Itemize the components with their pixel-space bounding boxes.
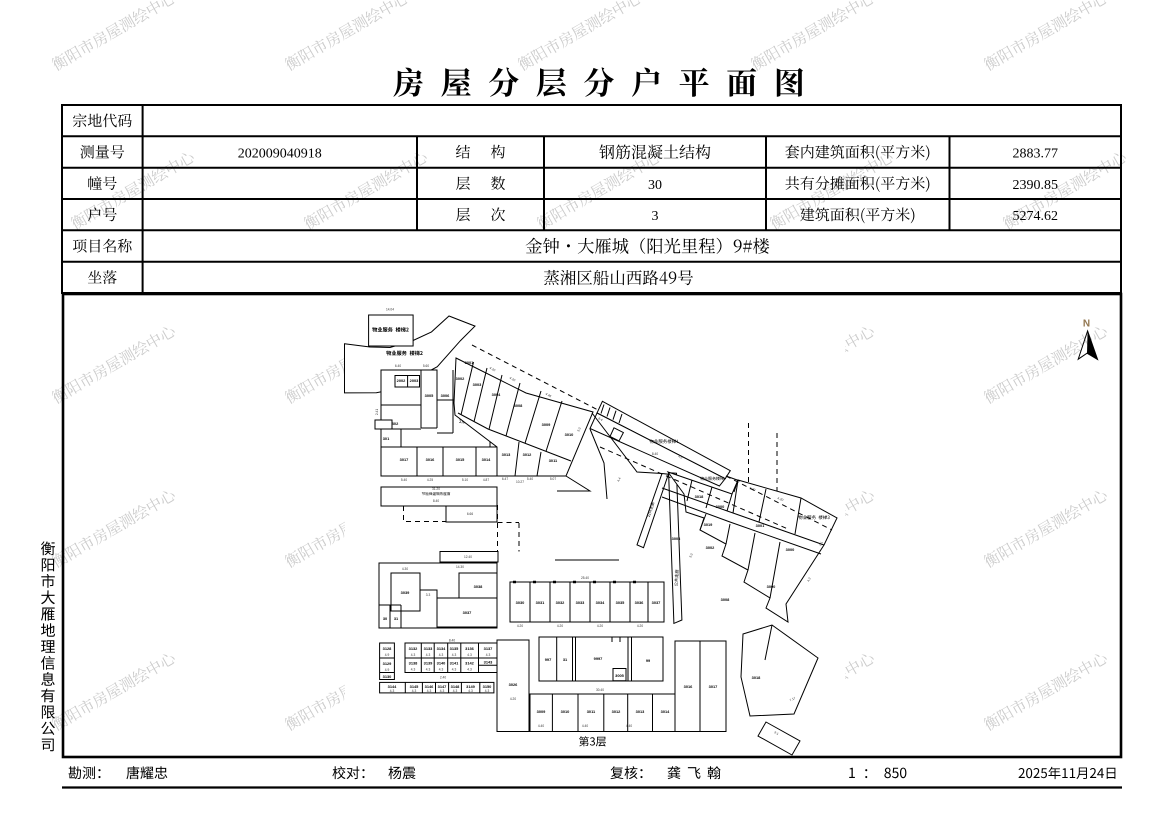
svg-text:3004: 3004 xyxy=(492,392,501,397)
svg-text:3128: 3128 xyxy=(383,646,392,651)
svg-text:3133: 3133 xyxy=(424,646,433,651)
svg-text:3141: 3141 xyxy=(450,661,459,666)
svg-text:2002: 2002 xyxy=(397,378,406,383)
svg-text:5.40: 5.40 xyxy=(527,477,533,481)
svg-text:3: 3 xyxy=(652,209,659,224)
svg-text:4.20: 4.20 xyxy=(510,697,516,701)
svg-text:2.41: 2.41 xyxy=(375,409,379,415)
svg-text:3143: 3143 xyxy=(484,660,493,665)
svg-text:3026: 3026 xyxy=(509,682,518,687)
svg-text:14.04: 14.04 xyxy=(386,308,394,312)
svg-text:4.20: 4.20 xyxy=(597,624,603,628)
svg-text:3132: 3132 xyxy=(409,646,418,651)
svg-text:4.3: 4.3 xyxy=(439,668,444,672)
svg-text:3009: 3009 xyxy=(542,422,551,427)
svg-text:4.3: 4.3 xyxy=(426,668,431,672)
svg-text:4.25: 4.25 xyxy=(427,478,433,482)
svg-text:2003: 2003 xyxy=(410,378,419,383)
svg-text:301: 301 xyxy=(383,436,390,441)
svg-text:4.20: 4.20 xyxy=(637,624,643,628)
svg-text:4.9: 4.9 xyxy=(385,668,390,672)
svg-text:3035: 3035 xyxy=(616,600,625,605)
svg-text:997: 997 xyxy=(545,657,552,662)
svg-text:4.3: 4.3 xyxy=(453,689,458,693)
svg-text:3039: 3039 xyxy=(401,590,410,595)
svg-text:3018: 3018 xyxy=(752,675,761,680)
svg-text:4.87: 4.87 xyxy=(483,478,489,482)
svg-text:8.40: 8.40 xyxy=(652,452,658,456)
svg-text:2390.85: 2390.85 xyxy=(1013,178,1059,193)
svg-text:3030: 3030 xyxy=(516,600,525,605)
svg-text:3034: 3034 xyxy=(596,600,605,605)
svg-text:4.3: 4.3 xyxy=(427,689,432,693)
svg-text:3008: 3008 xyxy=(721,597,730,602)
svg-text:3008: 3008 xyxy=(514,403,523,408)
svg-text:4.40: 4.40 xyxy=(538,724,544,728)
svg-text:30.40: 30.40 xyxy=(596,688,604,692)
svg-text:3031: 3031 xyxy=(536,600,545,605)
svg-text:3015: 3015 xyxy=(456,457,465,462)
svg-text:30: 30 xyxy=(383,616,387,621)
svg-text:3011: 3011 xyxy=(587,709,596,714)
svg-text:4.3: 4.3 xyxy=(468,689,473,693)
svg-text:202009040918: 202009040918 xyxy=(238,146,322,161)
svg-text:4.3: 4.3 xyxy=(426,653,431,657)
svg-text:302: 302 xyxy=(392,421,399,426)
svg-text:4.40: 4.40 xyxy=(626,724,632,728)
svg-text:3002: 3002 xyxy=(456,376,465,381)
svg-text:6.47: 6.47 xyxy=(502,477,508,481)
svg-text:3001: 3001 xyxy=(756,523,765,528)
svg-text:4.3: 4.3 xyxy=(439,653,444,657)
svg-text:4.3: 4.3 xyxy=(467,668,472,672)
svg-text:6.66: 6.66 xyxy=(467,512,473,516)
svg-text:5.10: 5.10 xyxy=(462,478,468,482)
svg-text:N: N xyxy=(1083,319,1090,330)
svg-text:3003: 3003 xyxy=(473,382,482,387)
svg-text:4.9: 4.9 xyxy=(385,653,390,657)
svg-text:4.30: 4.30 xyxy=(402,567,408,571)
svg-text:4.20: 4.20 xyxy=(517,624,523,628)
svg-text:3001: 3001 xyxy=(465,360,474,365)
svg-text:12.40: 12.40 xyxy=(464,555,472,559)
svg-text:3010: 3010 xyxy=(565,432,574,437)
svg-text:3018: 3018 xyxy=(695,494,704,499)
svg-text:3017: 3017 xyxy=(709,684,718,689)
svg-text:3011: 3011 xyxy=(549,458,558,463)
svg-text:3135: 3135 xyxy=(450,646,459,651)
svg-text:3032: 3032 xyxy=(556,600,565,605)
svg-text:3005: 3005 xyxy=(615,673,624,678)
svg-text:5.40: 5.40 xyxy=(401,478,407,482)
svg-text:3036: 3036 xyxy=(635,600,644,605)
svg-text:3017: 3017 xyxy=(400,457,409,462)
svg-text:3140: 3140 xyxy=(437,661,446,666)
svg-text:10.27: 10.27 xyxy=(516,480,524,484)
svg-text:3.3: 3.3 xyxy=(426,593,431,597)
svg-text:25.40: 25.40 xyxy=(581,576,589,580)
svg-text:3129: 3129 xyxy=(383,661,392,666)
svg-text:3006: 3006 xyxy=(441,393,450,398)
svg-text:4.3: 4.3 xyxy=(411,668,416,672)
svg-text:3000: 3000 xyxy=(716,504,725,509)
svg-text:3014: 3014 xyxy=(482,457,491,462)
svg-text:4.3: 4.3 xyxy=(390,689,395,693)
svg-text:4.3: 4.3 xyxy=(486,653,491,657)
svg-text:5274.62: 5274.62 xyxy=(1013,209,1059,224)
svg-text:31.20: 31.20 xyxy=(432,487,440,491)
svg-text:3136: 3136 xyxy=(465,646,474,651)
svg-text:5.60: 5.60 xyxy=(423,364,429,368)
svg-text:4.3: 4.3 xyxy=(411,653,416,657)
svg-text:4.3: 4.3 xyxy=(485,689,490,693)
svg-text:3002: 3002 xyxy=(706,545,715,550)
svg-text:6.40: 6.40 xyxy=(395,364,401,368)
svg-text:3142: 3142 xyxy=(465,661,474,666)
svg-text:3009: 3009 xyxy=(537,709,546,714)
svg-text:4.3: 4.3 xyxy=(467,653,472,657)
svg-text:3005: 3005 xyxy=(425,393,434,398)
svg-text:3010: 3010 xyxy=(561,709,570,714)
svg-text:3038: 3038 xyxy=(474,584,483,589)
svg-text:4.3: 4.3 xyxy=(452,668,457,672)
svg-text:4.3: 4.3 xyxy=(452,653,457,657)
svg-text:4.3: 4.3 xyxy=(412,689,417,693)
svg-text:3130: 3130 xyxy=(383,674,392,679)
svg-text:3013: 3013 xyxy=(502,452,511,457)
svg-text:9997: 9997 xyxy=(594,656,603,661)
svg-text:30: 30 xyxy=(648,178,662,193)
svg-text:3003: 3003 xyxy=(672,536,681,541)
svg-text:3037: 3037 xyxy=(652,600,661,605)
svg-text:14.30: 14.30 xyxy=(456,565,464,569)
svg-text:2883.77: 2883.77 xyxy=(1013,146,1059,161)
svg-text:3016: 3016 xyxy=(684,684,693,689)
svg-text:3014: 3014 xyxy=(661,709,670,714)
svg-text:3012: 3012 xyxy=(523,452,532,457)
svg-text:3138: 3138 xyxy=(409,661,418,666)
svg-text:3134: 3134 xyxy=(437,646,446,651)
svg-text:3139: 3139 xyxy=(424,661,433,666)
svg-text:3013: 3013 xyxy=(636,709,645,714)
svg-text:5.07: 5.07 xyxy=(550,477,556,481)
svg-text:4.20: 4.20 xyxy=(557,624,563,628)
svg-text:3016: 3016 xyxy=(426,457,435,462)
svg-text:8.40: 8.40 xyxy=(449,639,455,643)
svg-text:3000: 3000 xyxy=(767,584,776,589)
svg-text:3019: 3019 xyxy=(704,522,713,527)
svg-text:3012: 3012 xyxy=(612,709,621,714)
svg-text:3033: 3033 xyxy=(576,600,585,605)
svg-text:4.3: 4.3 xyxy=(440,689,445,693)
svg-text:2.40: 2.40 xyxy=(440,676,446,680)
svg-text:8.40: 8.40 xyxy=(433,499,439,503)
svg-text:4.40: 4.40 xyxy=(582,724,588,728)
svg-text:3137: 3137 xyxy=(484,646,493,651)
svg-text:3037: 3037 xyxy=(463,610,472,615)
svg-text:3000: 3000 xyxy=(786,547,795,552)
